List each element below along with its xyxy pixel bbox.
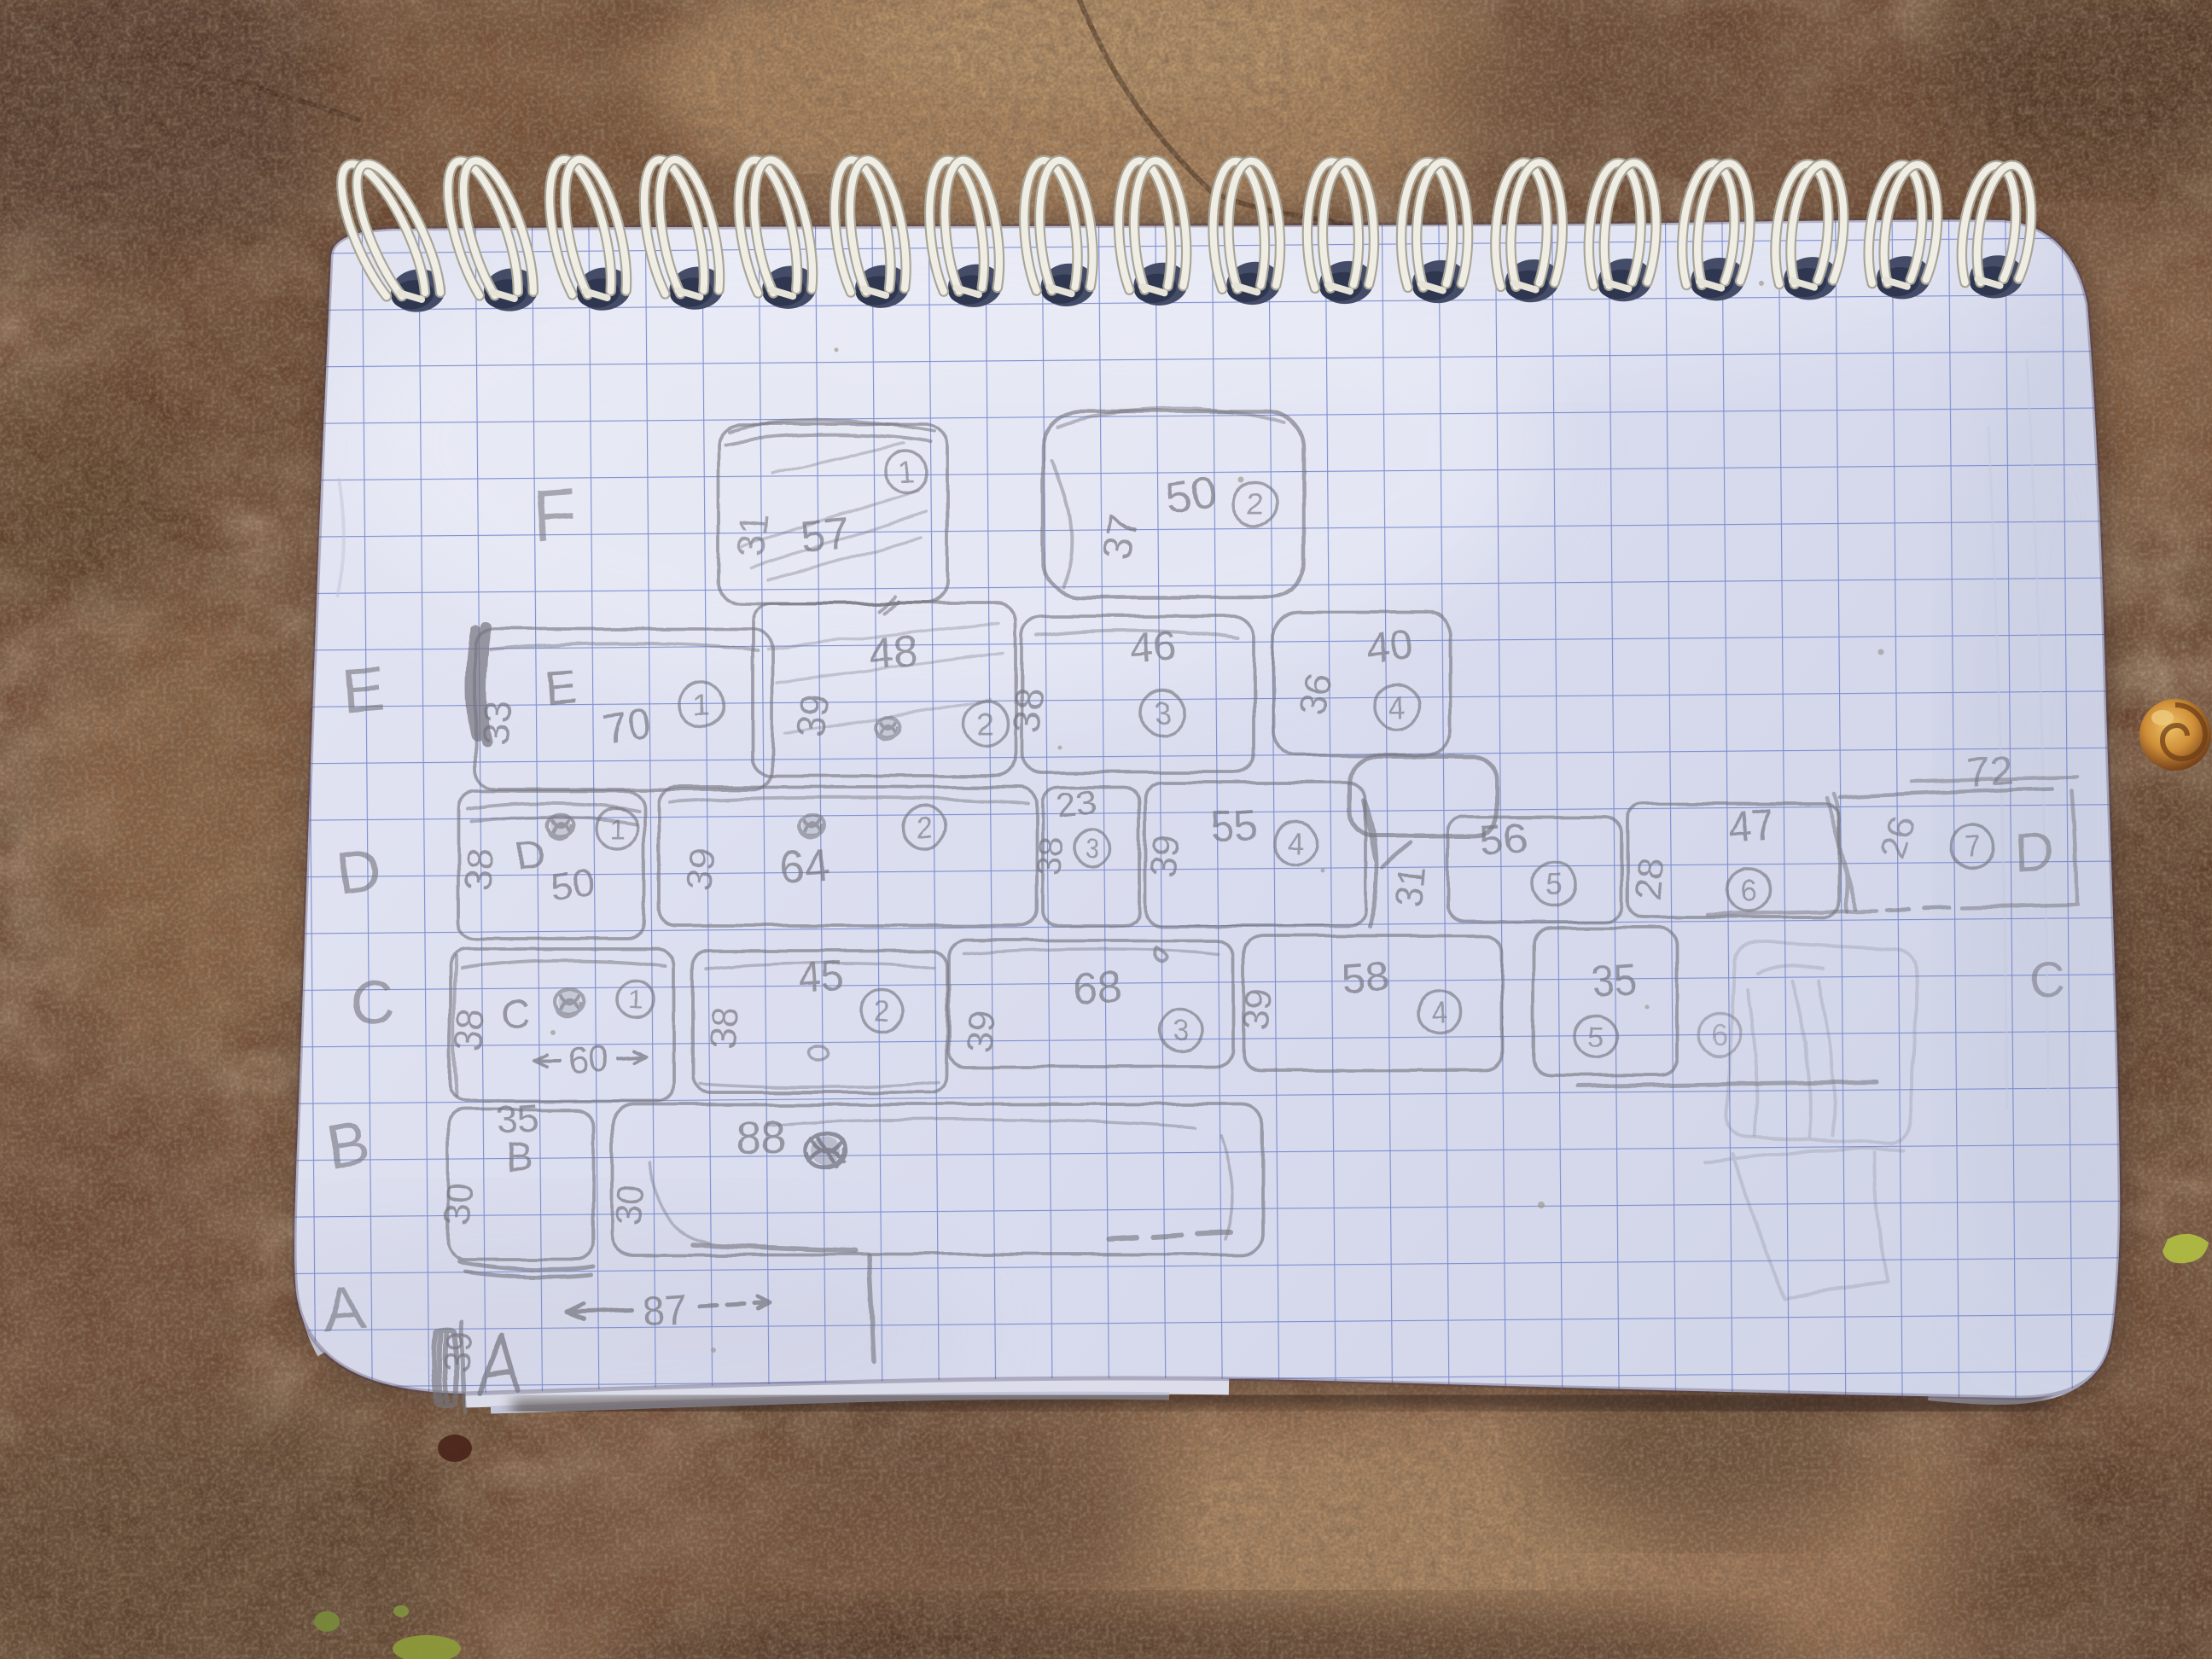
svg-text:2: 2 bbox=[977, 707, 994, 742]
svg-text:48: 48 bbox=[867, 626, 920, 679]
svg-text:55: 55 bbox=[1208, 800, 1259, 851]
svg-text:58: 58 bbox=[1341, 952, 1391, 1003]
svg-text:31: 31 bbox=[729, 511, 777, 559]
svg-text:60: 60 bbox=[566, 1037, 610, 1081]
svg-text:5: 5 bbox=[1587, 1021, 1604, 1054]
svg-text:39: 39 bbox=[678, 847, 724, 892]
svg-text:30: 30 bbox=[436, 1181, 481, 1226]
svg-text:50: 50 bbox=[1163, 468, 1219, 523]
svg-text:6: 6 bbox=[1740, 874, 1756, 907]
svg-text:47: 47 bbox=[1726, 799, 1778, 852]
svg-text:6: 6 bbox=[1711, 1018, 1727, 1051]
svg-text:39: 39 bbox=[958, 1009, 1004, 1054]
svg-text:C: C bbox=[2029, 952, 2066, 1008]
svg-text:4: 4 bbox=[1287, 827, 1303, 860]
svg-text:39: 39 bbox=[1235, 987, 1280, 1033]
svg-text:38: 38 bbox=[457, 847, 502, 892]
svg-text:35: 35 bbox=[1589, 955, 1639, 1006]
svg-text:30: 30 bbox=[608, 1182, 653, 1227]
svg-text:39: 39 bbox=[1143, 833, 1188, 878]
svg-text:B: B bbox=[504, 1132, 535, 1182]
svg-text:33: 33 bbox=[473, 699, 521, 747]
svg-text:36: 36 bbox=[1291, 670, 1340, 719]
svg-text:1: 1 bbox=[609, 813, 626, 846]
svg-text:C: C bbox=[348, 967, 397, 1038]
svg-text:87: 87 bbox=[640, 1287, 689, 1336]
svg-text:38: 38 bbox=[447, 1007, 492, 1052]
svg-text:E: E bbox=[341, 652, 387, 725]
svg-text:2: 2 bbox=[916, 811, 932, 844]
svg-text:4: 4 bbox=[1431, 996, 1447, 1029]
svg-text:23: 23 bbox=[1055, 782, 1098, 826]
svg-text:57: 57 bbox=[798, 509, 852, 563]
svg-text:31: 31 bbox=[1388, 864, 1434, 909]
svg-text:A: A bbox=[319, 1273, 367, 1346]
svg-text:38: 38 bbox=[1004, 687, 1051, 735]
svg-text:50: 50 bbox=[548, 860, 596, 909]
svg-text:D: D bbox=[514, 832, 546, 879]
svg-text:46: 46 bbox=[1127, 621, 1178, 672]
svg-text:F: F bbox=[530, 473, 579, 556]
svg-text:88: 88 bbox=[735, 1111, 788, 1164]
svg-text:3: 3 bbox=[1154, 696, 1171, 731]
svg-text:70: 70 bbox=[600, 700, 654, 754]
svg-text:40: 40 bbox=[1364, 620, 1416, 673]
svg-text:45: 45 bbox=[795, 951, 846, 1002]
svg-text:72: 72 bbox=[1966, 748, 2016, 796]
svg-text:C: C bbox=[500, 991, 533, 1038]
svg-text:56: 56 bbox=[1478, 813, 1528, 864]
svg-text:38: 38 bbox=[1030, 836, 1071, 877]
svg-text:E: E bbox=[543, 660, 579, 715]
svg-text:1: 1 bbox=[628, 987, 643, 1015]
svg-text:1: 1 bbox=[899, 457, 915, 489]
svg-text:28: 28 bbox=[1627, 857, 1673, 902]
svg-text:2: 2 bbox=[1246, 486, 1263, 521]
svg-text:39: 39 bbox=[436, 1329, 481, 1374]
svg-text:37: 37 bbox=[1093, 509, 1149, 565]
svg-text:4: 4 bbox=[1388, 690, 1406, 725]
svg-text:39: 39 bbox=[789, 692, 836, 740]
svg-text:D: D bbox=[2013, 820, 2056, 883]
svg-text:3: 3 bbox=[1086, 835, 1100, 864]
svg-text:5: 5 bbox=[1545, 868, 1562, 901]
svg-text:2: 2 bbox=[873, 995, 889, 1028]
svg-text:68: 68 bbox=[1071, 962, 1124, 1015]
svg-text:64: 64 bbox=[778, 840, 831, 893]
svg-text:7: 7 bbox=[1964, 830, 1980, 864]
svg-text:D: D bbox=[332, 835, 386, 909]
svg-text:1: 1 bbox=[693, 687, 710, 722]
svg-text:3: 3 bbox=[1173, 1014, 1189, 1047]
svg-text:38: 38 bbox=[702, 1005, 748, 1051]
